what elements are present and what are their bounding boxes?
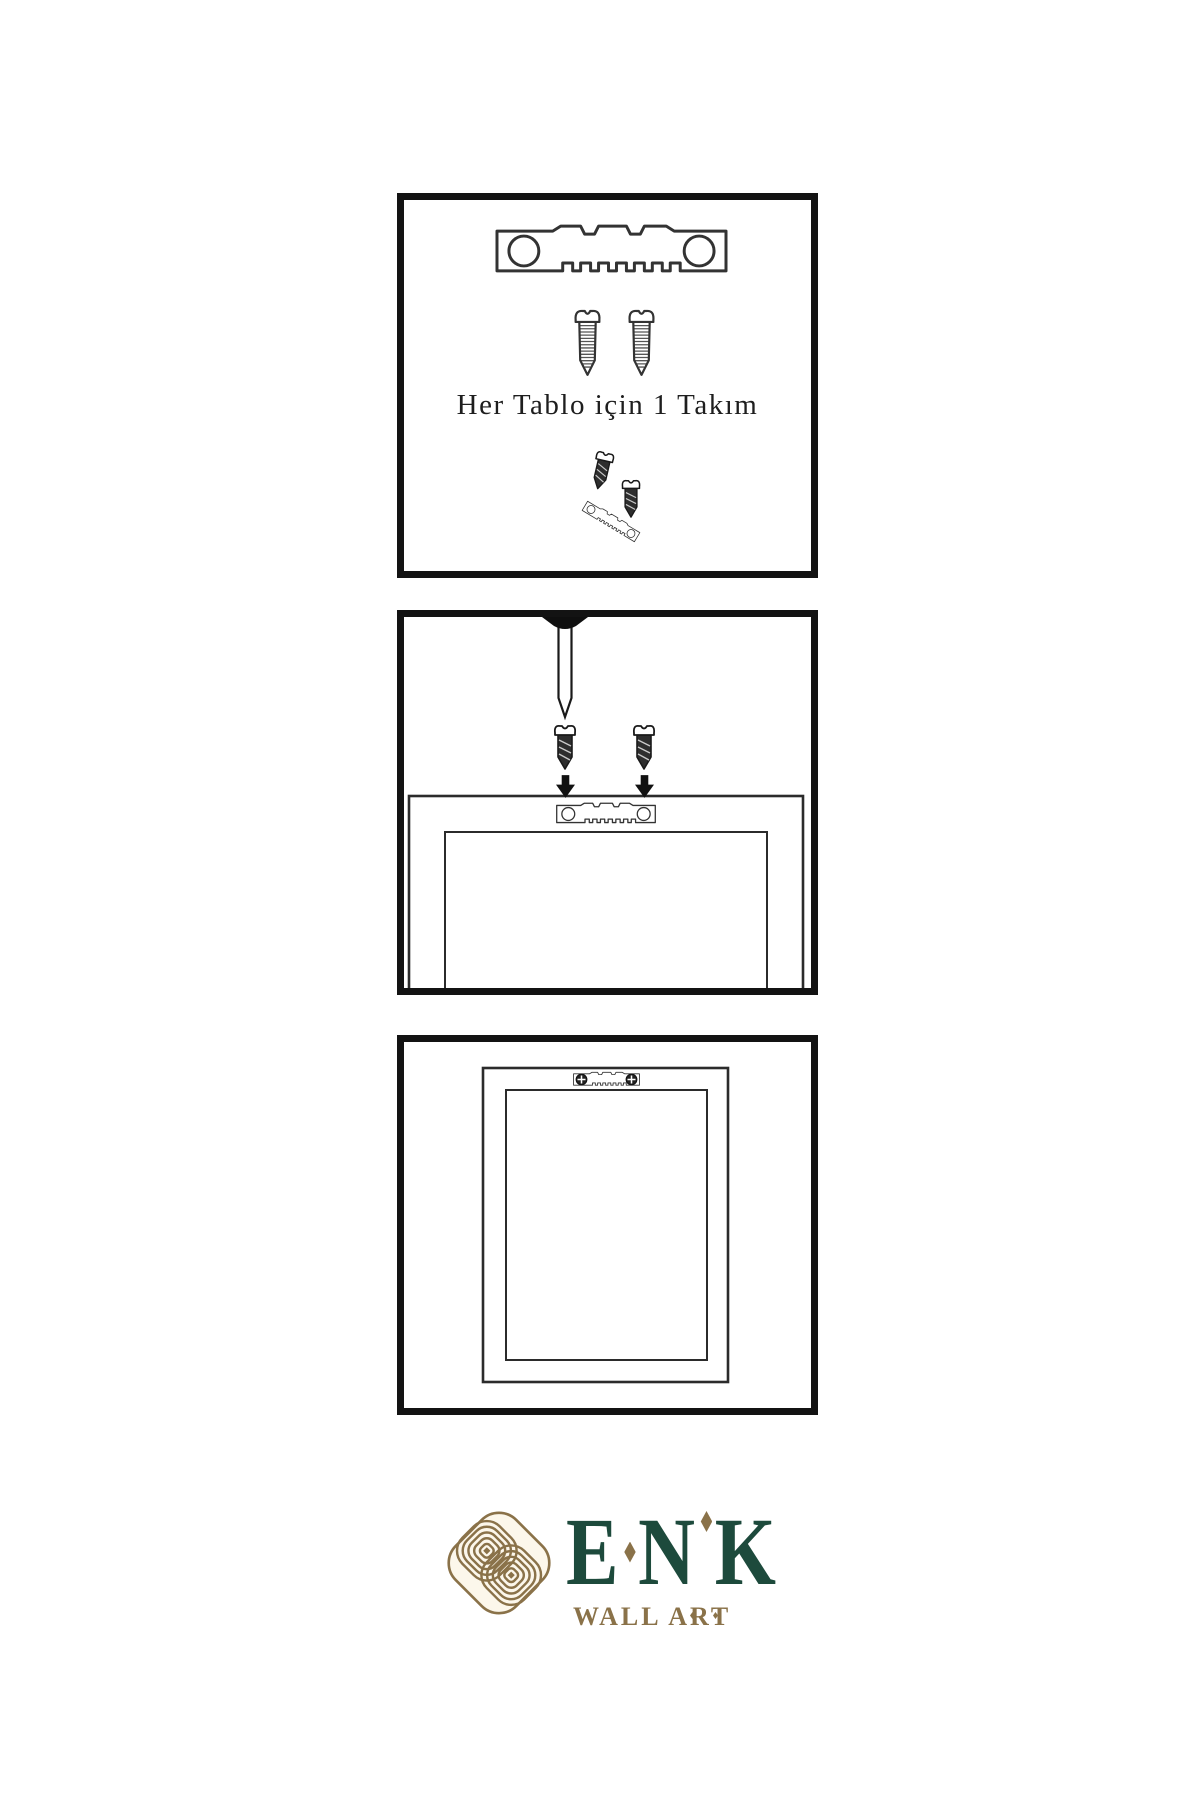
brand-wordmark: E N K WALL ART xyxy=(566,1504,826,1634)
arrow-down-icon xyxy=(556,775,575,798)
diamond-icon xyxy=(624,1542,635,1563)
panel-mounting-step xyxy=(397,610,818,995)
brand-letter: N xyxy=(638,1504,698,1600)
brand-knot-emblem xyxy=(438,1494,560,1634)
sawtooth-hanger-icon xyxy=(495,223,728,279)
frame-back-inner-icon xyxy=(506,1090,707,1360)
mounting-illustration xyxy=(404,617,811,988)
wall-nail-icon xyxy=(542,617,588,717)
panel-hung-frame xyxy=(397,1035,818,1415)
mounted-hanger-icon xyxy=(557,803,656,822)
brand-name: E N K xyxy=(566,1504,779,1600)
kit-caption: Her Tablo için 1 Takım xyxy=(404,389,811,422)
knot-emblem-icon xyxy=(438,1494,560,1634)
screw-icon xyxy=(626,306,657,378)
screw-icon xyxy=(572,306,603,378)
diamond-icon xyxy=(701,1511,712,1532)
brand-letter: E xyxy=(566,1504,622,1600)
arrow-down-icon xyxy=(635,775,654,798)
screw-icon xyxy=(555,726,575,769)
brand-tagline: WALL ART xyxy=(573,1602,731,1632)
panel-hardware-kit: Her Tablo için 1 Takım xyxy=(397,193,818,578)
frame-back-inner-icon xyxy=(445,832,767,988)
mounted-hanger-with-screws-icon xyxy=(574,1072,640,1085)
screw-into-hanger-icon xyxy=(578,450,650,547)
brand-letter: K xyxy=(715,1504,780,1600)
screw-icon xyxy=(634,726,654,769)
hung-frame-illustration xyxy=(404,1042,811,1408)
